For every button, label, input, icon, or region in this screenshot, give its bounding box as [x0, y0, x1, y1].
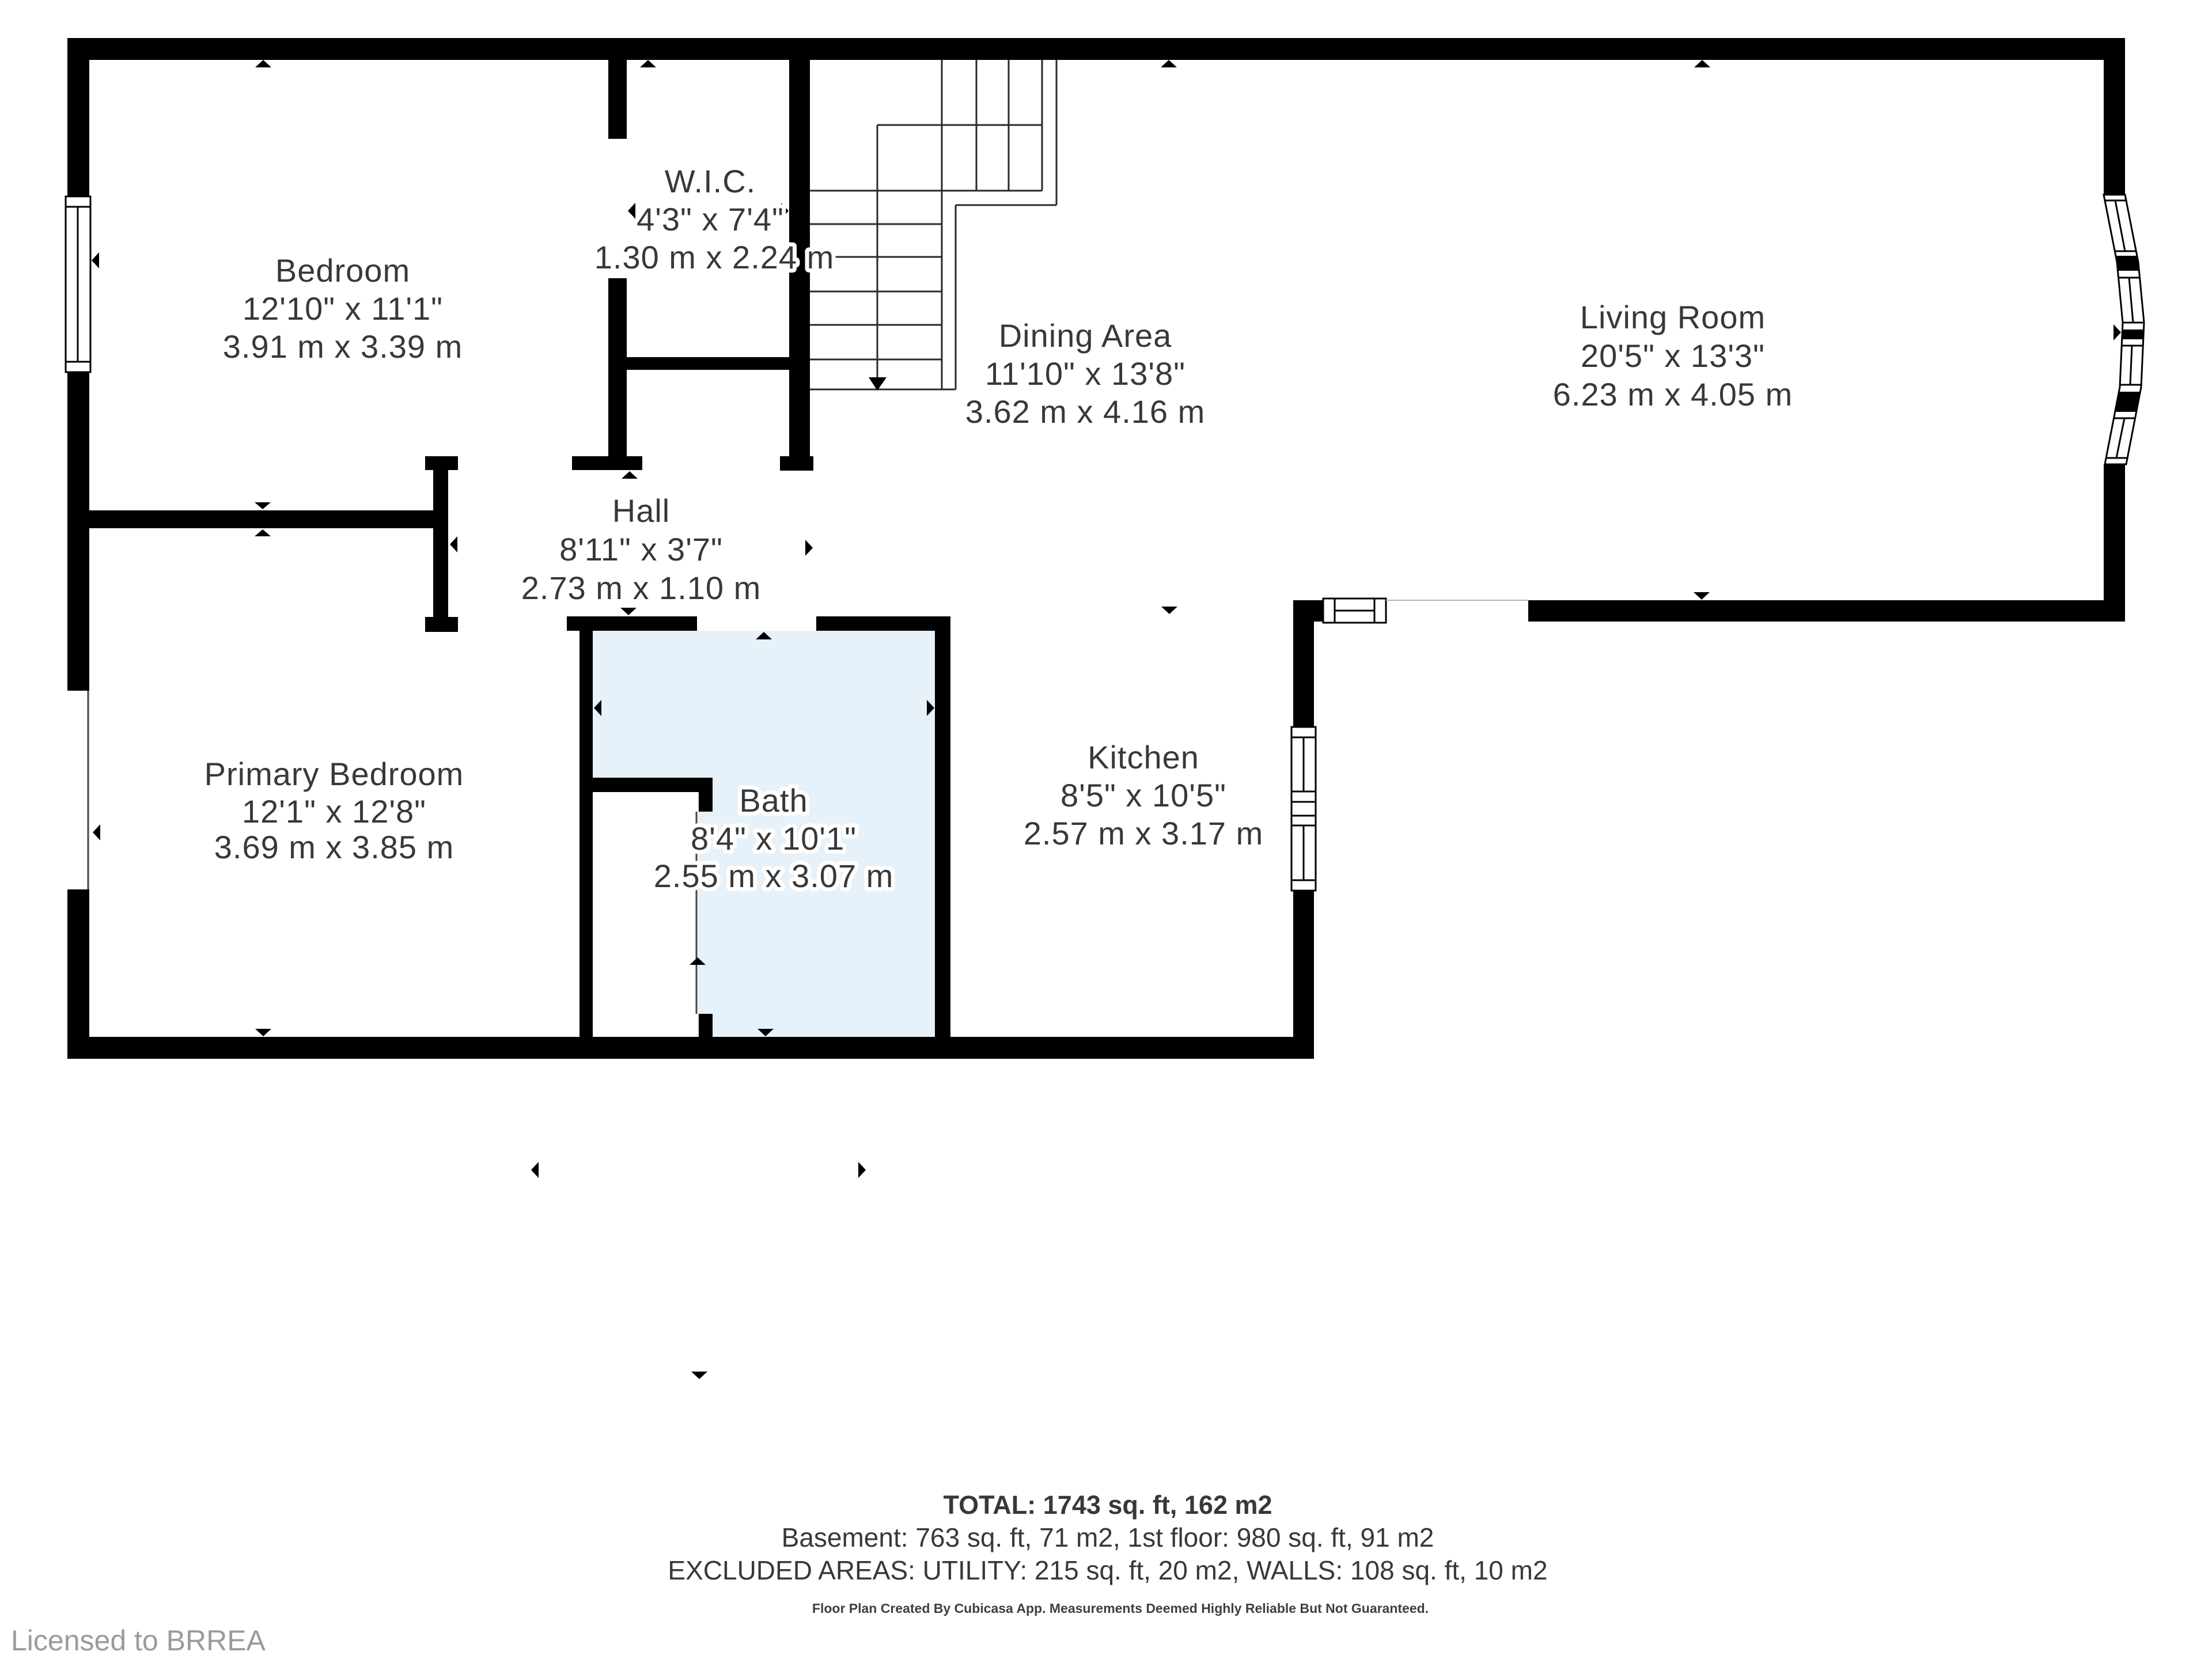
svg-text:Bath: Bath [739, 782, 808, 819]
svg-text:3.62 m x 4.16 m: 3.62 m x 4.16 m [965, 393, 1206, 430]
svg-text:Basement: 763 sq. ft, 71 m2, 1: Basement: 763 sq. ft, 71 m2, 1st floor: … [782, 1522, 1434, 1552]
svg-text:6.23 m x 4.05 m: 6.23 m x 4.05 m [1553, 376, 1793, 412]
svg-text:3.91 m x 3.39 m: 3.91 m x 3.39 m [223, 328, 463, 365]
svg-text:Dining Area: Dining Area [999, 317, 1172, 354]
svg-text:11'10" x 13'8": 11'10" x 13'8" [985, 355, 1185, 392]
svg-text:8'5" x 10'5": 8'5" x 10'5" [1060, 777, 1226, 813]
svg-text:W.I.C.: W.I.C. [665, 163, 756, 199]
svg-text:3.69 m x 3.85 m: 3.69 m x 3.85 m [214, 829, 454, 865]
svg-text:20'5" x 13'3": 20'5" x 13'3" [1581, 338, 1765, 374]
svg-text:Licensed to BRREA: Licensed to BRREA [11, 1624, 266, 1657]
svg-text:8'11" x 3'7": 8'11" x 3'7" [559, 531, 723, 567]
svg-text:1.30 m x 2.24 m: 1.30 m x 2.24 m [594, 239, 835, 275]
svg-text:Kitchen: Kitchen [1088, 739, 1199, 775]
svg-text:4'3" x 7'4": 4'3" x 7'4" [637, 201, 784, 237]
svg-text:2.57 m x 3.17 m: 2.57 m x 3.17 m [1024, 815, 1264, 851]
svg-text:Hall: Hall [612, 493, 670, 529]
svg-text:8'4" x 10'1": 8'4" x 10'1" [691, 820, 857, 857]
svg-text:12'1" x 12'8": 12'1" x 12'8" [242, 793, 426, 829]
svg-text:Bedroom: Bedroom [275, 252, 410, 289]
svg-text:TOTAL: 1743 sq. ft, 162 m2: TOTAL: 1743 sq. ft, 162 m2 [943, 1490, 1272, 1520]
svg-text:Floor Plan Created By Cubicasa: Floor Plan Created By Cubicasa App. Meas… [812, 1601, 1429, 1616]
svg-text:12'10" x 11'1": 12'10" x 11'1" [243, 290, 443, 327]
svg-text:2.55 m x 3.07 m: 2.55 m x 3.07 m [654, 858, 894, 894]
svg-text:2.73 m x 1.10 m: 2.73 m x 1.10 m [521, 570, 762, 606]
svg-text:Living Room: Living Room [1580, 299, 1766, 335]
svg-text:EXCLUDED AREAS: UTILITY: 215 s: EXCLUDED AREAS: UTILITY: 215 sq. ft, 20 … [668, 1555, 1547, 1585]
svg-text:Primary Bedroom: Primary Bedroom [204, 756, 464, 792]
